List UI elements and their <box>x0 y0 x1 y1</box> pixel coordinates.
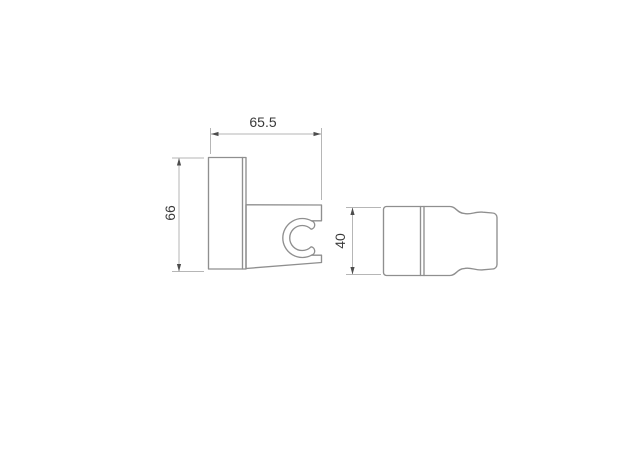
dimension-width-label: 65.5 <box>249 114 276 130</box>
technical-drawing: 65.5 66 40 <box>0 0 641 468</box>
dimension-lines <box>172 128 381 275</box>
holder-profile-outline <box>384 207 498 276</box>
arrow-height-left-top <box>177 158 181 166</box>
arrow-width-right <box>314 132 322 136</box>
dimension-height-left-label: 66 <box>162 205 178 221</box>
arrow-height-right-bottom <box>350 267 354 275</box>
side-view <box>209 158 322 270</box>
arrow-width-left <box>211 132 219 136</box>
clip-socket-outline <box>290 221 315 255</box>
wall-plate-outline <box>209 158 247 270</box>
drawing-canvas: 65.5 66 40 <box>0 0 641 468</box>
holder-block-outline <box>246 205 322 269</box>
dimension-arrows <box>177 132 355 275</box>
dimension-height-right-label: 40 <box>332 233 348 249</box>
arrow-height-right-top <box>350 208 354 216</box>
front-view <box>384 207 498 276</box>
arrow-height-left-bottom <box>177 264 181 272</box>
